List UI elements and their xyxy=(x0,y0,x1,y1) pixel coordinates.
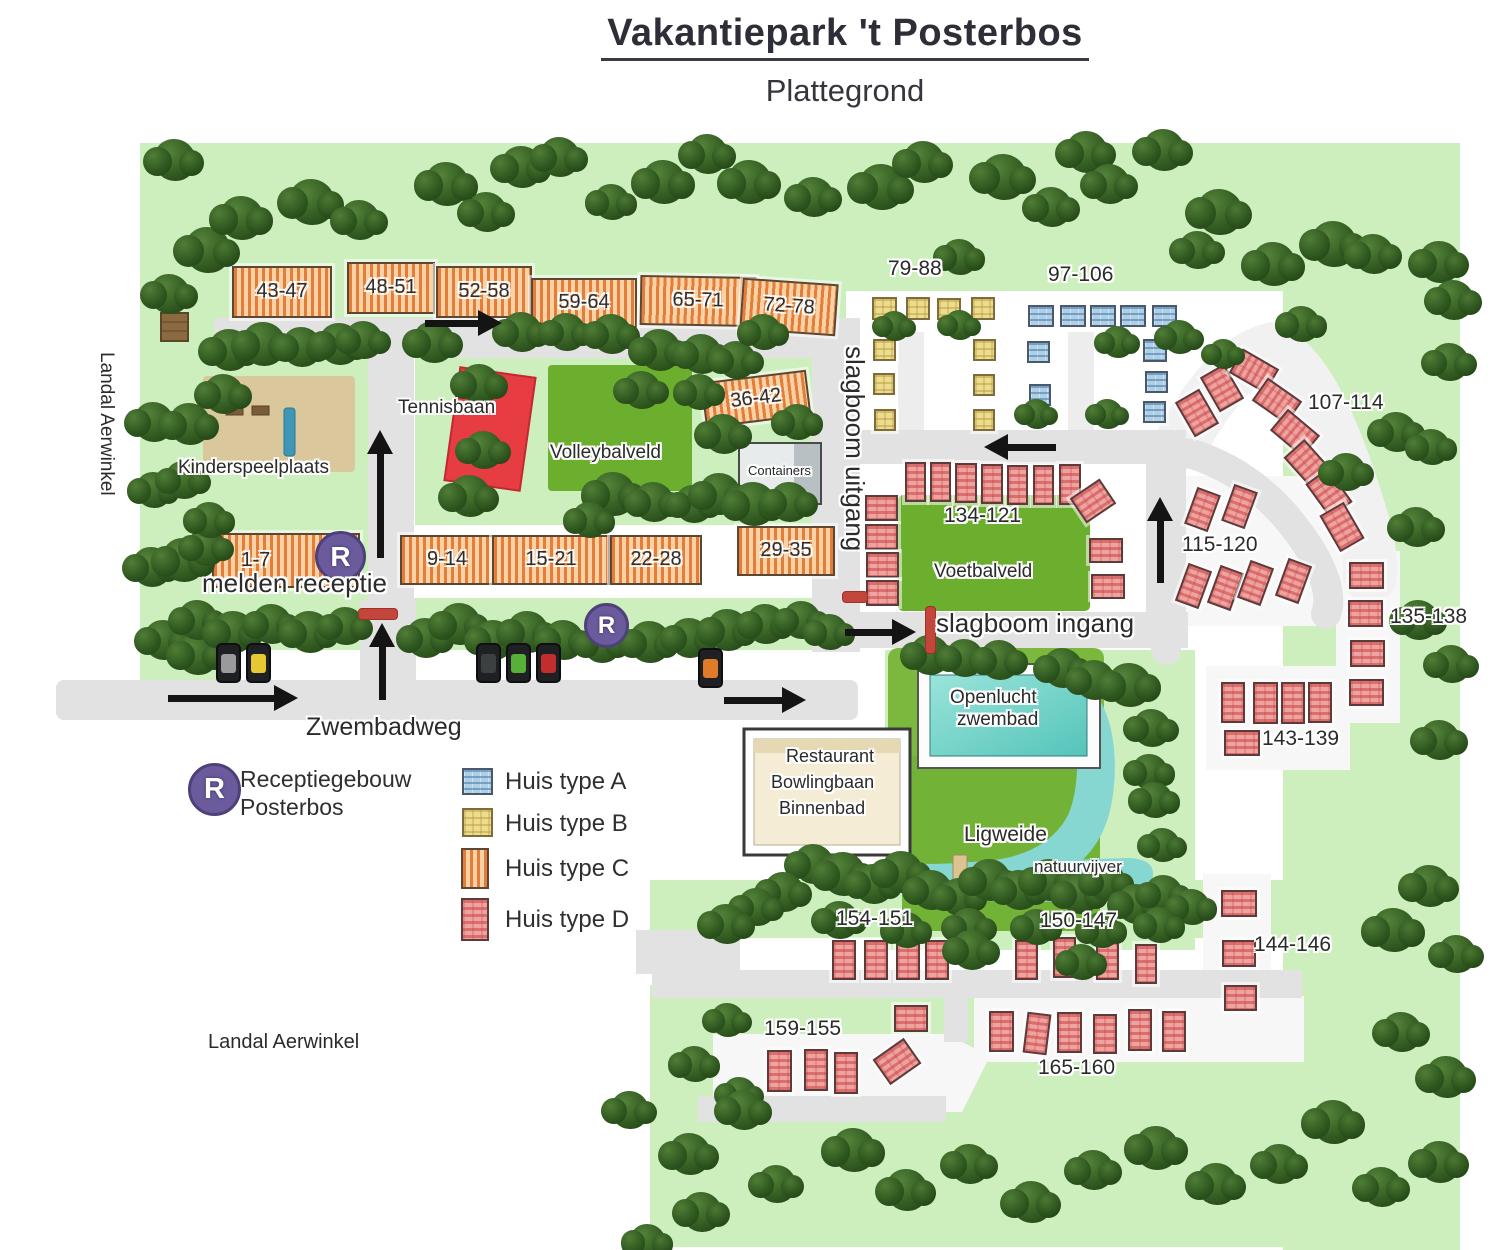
tree xyxy=(1433,645,1471,683)
building-43-47: 43-47 xyxy=(232,266,332,318)
tree xyxy=(1197,189,1243,235)
house-type-d xyxy=(905,462,926,502)
map-label: natuurvijver xyxy=(1034,858,1122,876)
tree xyxy=(688,134,728,174)
building-29-35: 29-35 xyxy=(737,526,835,576)
arrow-part xyxy=(782,687,806,713)
parked-car xyxy=(698,648,723,688)
tree xyxy=(592,314,632,354)
tree xyxy=(1434,280,1474,320)
house-type-d xyxy=(1033,465,1054,505)
barrier xyxy=(358,608,398,620)
building-label: 22-28 xyxy=(612,548,700,571)
tree xyxy=(1414,429,1450,465)
tree xyxy=(467,192,507,232)
tree xyxy=(950,1144,990,1184)
car-body xyxy=(703,659,718,678)
arrow-part xyxy=(274,685,298,711)
tree xyxy=(154,139,196,181)
tree xyxy=(548,313,586,351)
tree xyxy=(794,177,834,217)
house-type-a xyxy=(1060,305,1086,327)
map-label: 79-88 xyxy=(888,258,942,280)
tree xyxy=(1260,1144,1300,1184)
map-label: 134-121 xyxy=(944,505,1021,527)
house-type-d xyxy=(981,464,1003,504)
car-body xyxy=(541,654,556,673)
tree xyxy=(340,200,380,240)
tree xyxy=(1146,828,1180,862)
house-type-d xyxy=(1023,1012,1052,1056)
tree xyxy=(1179,231,1217,269)
tree xyxy=(669,1133,711,1175)
house-type-a xyxy=(1028,305,1054,327)
house-type-d xyxy=(1221,890,1257,917)
house-type-d xyxy=(1135,944,1157,984)
tree xyxy=(832,1128,876,1172)
legend-swatch-type-c xyxy=(461,848,489,889)
tree xyxy=(952,930,992,970)
building-label: 43-47 xyxy=(234,280,330,303)
tree xyxy=(886,1169,928,1211)
house-type-d xyxy=(834,1052,858,1094)
map-label: 143-139 xyxy=(1262,728,1339,750)
tree xyxy=(1022,399,1052,429)
tree xyxy=(1090,164,1130,204)
parked-car xyxy=(506,643,531,683)
page-title: Vakantiepark 't Posterbos xyxy=(601,12,1089,61)
house-type-d xyxy=(1015,940,1038,980)
house-type-a xyxy=(1090,305,1116,327)
arrow-part xyxy=(379,643,386,700)
tree xyxy=(903,141,945,183)
arrow-part xyxy=(984,434,1008,460)
car-body xyxy=(251,654,266,673)
arrow-part xyxy=(724,697,786,704)
map-label: Voetbalveld xyxy=(934,562,1032,582)
building-label: 9-14 xyxy=(402,548,492,571)
house-type-d xyxy=(1093,1014,1117,1054)
car-body xyxy=(481,654,496,673)
map-label: Zwembadweg xyxy=(306,714,462,740)
building-9-14: 9-14 xyxy=(400,535,494,585)
tree xyxy=(1064,944,1100,980)
house-type-d xyxy=(894,1005,928,1032)
page-subtitle: Plattegrond xyxy=(595,73,1095,109)
house-type-d xyxy=(866,552,899,578)
tree xyxy=(1372,908,1416,952)
legend-swatch-type-a xyxy=(462,768,493,795)
map-label: Containers xyxy=(748,464,811,478)
house-type-b xyxy=(906,297,930,320)
tree xyxy=(1163,320,1197,354)
tree xyxy=(1419,241,1461,283)
tree xyxy=(413,321,455,363)
house-type-b xyxy=(873,373,895,395)
legend-reception-line2: Posterbos xyxy=(240,794,344,821)
tree xyxy=(677,1046,713,1082)
legend-reception-line1: Receptiegebouw xyxy=(240,766,411,793)
house-type-d xyxy=(864,940,888,980)
tree xyxy=(707,904,747,944)
tree xyxy=(711,1003,745,1037)
legend-reception-symbol: R xyxy=(188,763,241,816)
building-label: 15-21 xyxy=(494,548,608,571)
tree xyxy=(642,160,686,204)
tree xyxy=(540,137,580,177)
tree xyxy=(812,614,848,650)
building-48-51: 48-51 xyxy=(347,262,435,314)
tree xyxy=(1133,709,1171,747)
tree xyxy=(728,160,772,204)
house-type-d xyxy=(1057,1012,1082,1053)
tree xyxy=(611,1091,649,1129)
tree xyxy=(1420,720,1460,760)
title-block: Vakantiepark 't Posterbos Plattegrond xyxy=(595,12,1095,109)
tree xyxy=(1409,865,1451,907)
building-label: 52-58 xyxy=(438,280,530,303)
tree xyxy=(1011,1181,1053,1223)
parked-car xyxy=(216,643,241,683)
legend-item-label: Huis type C xyxy=(505,855,629,883)
building-label: 48-51 xyxy=(349,276,433,299)
tree xyxy=(1074,1150,1114,1190)
building-65-71: 65-71 xyxy=(640,275,757,327)
tree xyxy=(945,310,975,340)
tree xyxy=(1135,1126,1179,1170)
plattegrond-page: Vakantiepark 't Posterbos Plattegrond Re… xyxy=(0,0,1500,1250)
arrow-part xyxy=(367,430,393,454)
tree xyxy=(758,1165,796,1203)
map-label: Volleybalveld xyxy=(550,443,661,463)
house-type-d xyxy=(930,462,951,502)
house-type-d xyxy=(804,1049,828,1091)
arrow-part xyxy=(1004,444,1056,451)
legend-item-label: Huis type D xyxy=(505,906,629,934)
tree xyxy=(502,312,542,352)
tree xyxy=(1102,326,1134,358)
house-type-d xyxy=(866,580,899,606)
tree xyxy=(204,374,244,414)
tree xyxy=(770,482,810,522)
tree xyxy=(1093,399,1123,429)
building-label: 59-64 xyxy=(533,291,635,314)
tree xyxy=(449,475,491,517)
legend-swatch-type-b xyxy=(462,808,493,837)
legend-item-label: Huis type B xyxy=(505,810,628,838)
tree xyxy=(465,431,503,469)
tree xyxy=(1284,306,1320,342)
tree xyxy=(1382,1012,1422,1052)
house-type-d xyxy=(1253,682,1278,724)
reception-symbol: R xyxy=(584,603,629,648)
tree xyxy=(192,502,228,538)
car-body xyxy=(511,654,526,673)
house-type-a xyxy=(1027,341,1050,363)
house-type-a xyxy=(1143,401,1166,423)
tree xyxy=(704,414,744,454)
tree xyxy=(724,1090,764,1130)
tree xyxy=(623,371,661,409)
map-label: 144-146 xyxy=(1254,934,1331,956)
car-body xyxy=(221,654,236,673)
house-type-d xyxy=(1007,465,1028,505)
map-label: slagboom ingang xyxy=(936,610,1134,637)
tree xyxy=(289,179,335,225)
house-type-d xyxy=(1224,985,1257,1011)
tree xyxy=(1142,907,1178,943)
arrow-part xyxy=(168,695,278,702)
tree xyxy=(942,239,978,275)
arrow-part xyxy=(1147,497,1173,521)
map-label: 135-138 xyxy=(1390,606,1467,628)
map-label: Landal Aerwinkel xyxy=(96,352,116,496)
house-type-d xyxy=(955,463,977,503)
map-label: 154-151 xyxy=(836,908,913,930)
map-label: Ligweide xyxy=(964,824,1047,846)
tree xyxy=(1426,1056,1468,1098)
house-type-d xyxy=(1224,730,1260,756)
tree xyxy=(1196,1163,1238,1205)
arrow-part xyxy=(1157,517,1164,583)
tree xyxy=(1143,129,1185,171)
house-type-b xyxy=(873,339,896,361)
map-label: 97-106 xyxy=(1048,264,1113,286)
arrow-part xyxy=(425,320,482,327)
map-label: 165-160 xyxy=(1038,1057,1115,1079)
house-type-d xyxy=(989,1011,1014,1052)
tree xyxy=(1419,1141,1461,1183)
house-type-d xyxy=(1221,682,1245,723)
tree xyxy=(1354,234,1394,274)
parked-car xyxy=(246,643,271,683)
house-type-d xyxy=(767,1050,792,1092)
map-label: Tennisbaan xyxy=(398,398,495,418)
tree xyxy=(718,341,756,379)
house-type-b xyxy=(971,297,995,320)
tree xyxy=(425,162,469,206)
house-type-b xyxy=(973,339,996,361)
tree xyxy=(981,154,1027,200)
arrow-part xyxy=(369,623,395,647)
barrier xyxy=(925,606,936,654)
tree xyxy=(1252,242,1296,286)
map-label: 115-120 xyxy=(1182,534,1258,556)
tree xyxy=(980,640,1020,680)
map-label: 159-155 xyxy=(764,1018,841,1040)
parked-car xyxy=(476,643,501,683)
map-label: slagboom uitgang xyxy=(841,346,868,551)
tree xyxy=(169,403,211,445)
tree xyxy=(1137,782,1173,818)
map-label: Landal Aerwinkel xyxy=(208,1032,359,1053)
arrow-part xyxy=(845,629,896,636)
tree xyxy=(594,184,630,220)
legend-swatch-type-d xyxy=(461,898,489,941)
house-type-a xyxy=(1145,371,1168,393)
tree xyxy=(746,314,782,350)
building-label: 65-71 xyxy=(642,288,754,313)
tree xyxy=(682,374,718,410)
map-label: 150-147 xyxy=(1040,910,1117,932)
tree xyxy=(780,404,816,440)
tree xyxy=(1328,453,1366,491)
tree xyxy=(572,502,608,538)
house-type-d xyxy=(1162,1011,1186,1052)
tree xyxy=(880,311,910,341)
house-type-d xyxy=(832,940,856,980)
arrow-part xyxy=(892,619,916,645)
tree xyxy=(345,321,383,359)
map-label: Openlucht xyxy=(950,688,1037,708)
tree xyxy=(1397,507,1437,547)
house-type-d xyxy=(1281,682,1305,724)
tree xyxy=(1032,187,1072,227)
house-type-d xyxy=(1089,538,1123,563)
arrow-part xyxy=(478,310,502,336)
tree xyxy=(682,1192,722,1232)
map-label: melden receptie xyxy=(202,570,387,597)
house-type-b xyxy=(973,409,995,431)
map-label: zwembad xyxy=(957,710,1038,730)
tree xyxy=(150,274,190,314)
map-label: Bowlingbaan xyxy=(771,773,874,792)
map-label: Restaurant xyxy=(786,747,874,766)
building-15-21: 15-21 xyxy=(492,535,610,585)
house-type-d xyxy=(1128,1009,1152,1051)
house-type-d xyxy=(1348,600,1383,627)
arrow-part xyxy=(377,450,384,558)
building-label: 29-35 xyxy=(739,539,833,562)
house-type-d xyxy=(1350,640,1385,667)
tree xyxy=(1209,339,1239,369)
house-type-d xyxy=(1222,940,1256,967)
tree xyxy=(220,196,264,240)
legend-item-label: Huis type A xyxy=(505,768,626,796)
tree xyxy=(1431,343,1469,381)
house-type-d xyxy=(1349,562,1384,589)
map-label: 107-114 xyxy=(1308,392,1384,414)
house-type-b xyxy=(874,409,896,431)
barrier xyxy=(842,591,868,603)
house-type-d xyxy=(1349,679,1384,706)
map-label: Binnenbad xyxy=(779,799,865,818)
tree xyxy=(1362,1167,1402,1207)
house-type-d xyxy=(1308,682,1332,723)
house-type-a xyxy=(1120,305,1146,327)
tree xyxy=(1438,935,1476,973)
house-type-b xyxy=(973,374,995,396)
tree xyxy=(1108,663,1152,707)
house-type-d xyxy=(1091,574,1125,599)
map-label: Kinderspeelplaats xyxy=(178,458,329,478)
parked-car xyxy=(536,643,561,683)
tree xyxy=(1312,1100,1356,1144)
building-22-28: 22-28 xyxy=(610,535,702,585)
